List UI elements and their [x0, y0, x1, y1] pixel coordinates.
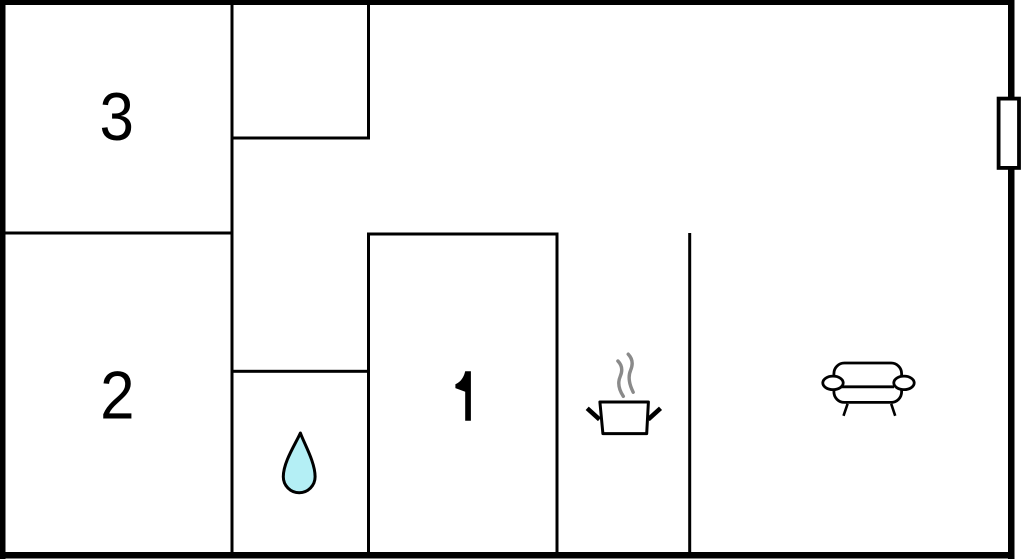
svg-text:2: 2 [100, 357, 134, 433]
svg-text:3: 3 [100, 78, 134, 154]
